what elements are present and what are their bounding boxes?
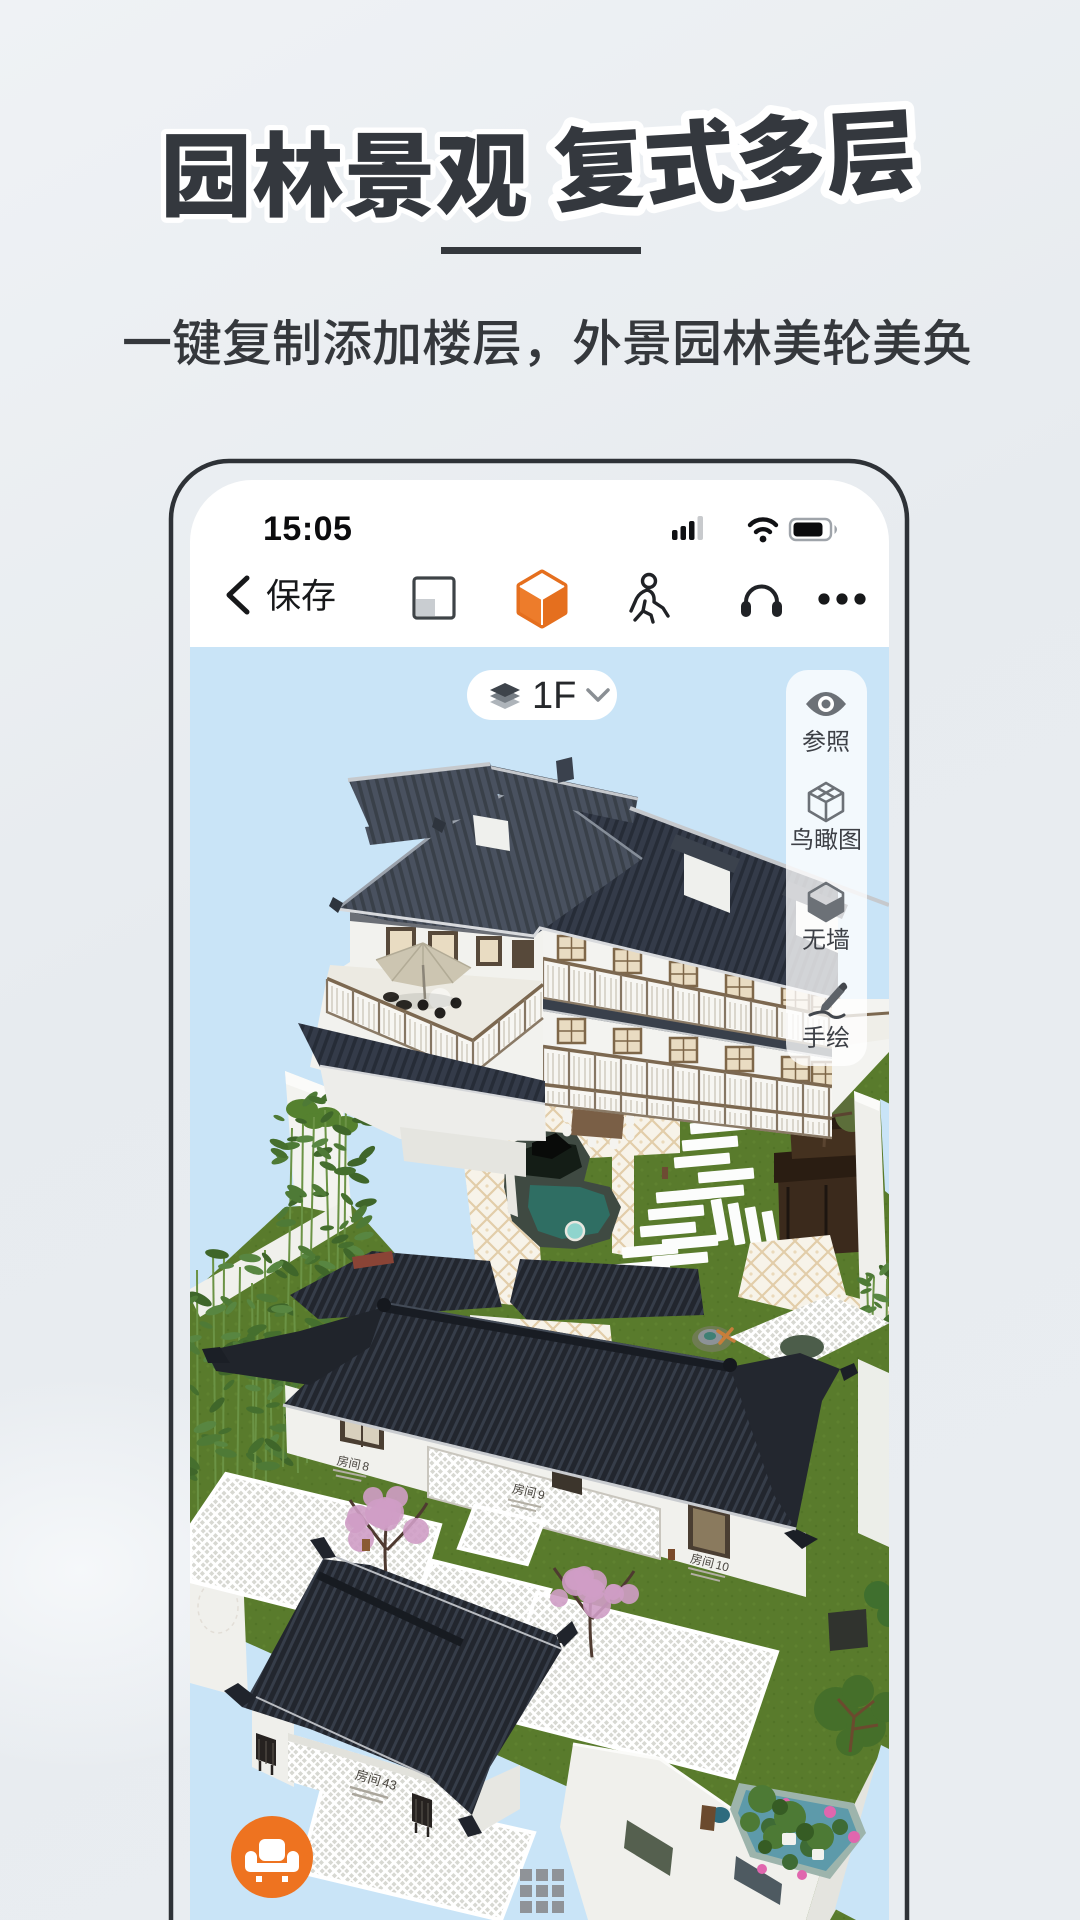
svg-text:1F: 1F — [532, 675, 576, 717]
svg-text:15:05: 15:05 — [263, 510, 352, 548]
